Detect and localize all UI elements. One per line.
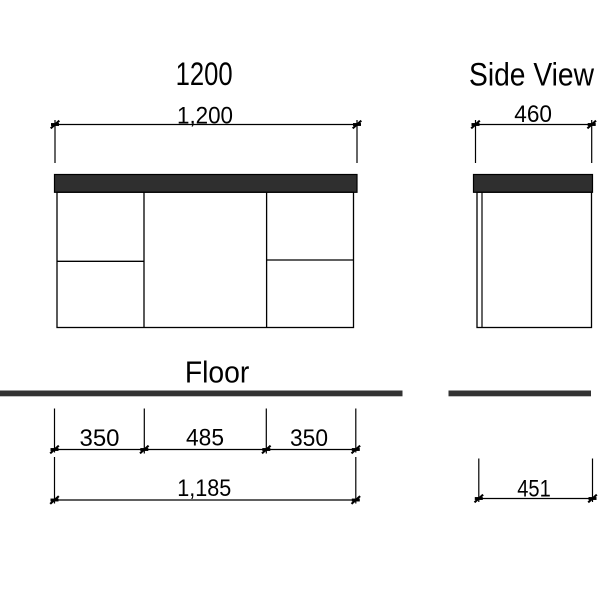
svg-text:1,185: 1,185 bbox=[177, 475, 231, 502]
svg-text:350: 350 bbox=[80, 425, 120, 452]
svg-text:485: 485 bbox=[186, 424, 224, 451]
svg-text:Side View: Side View bbox=[469, 57, 595, 93]
svg-text:350: 350 bbox=[290, 425, 328, 452]
svg-text:1,200: 1,200 bbox=[177, 103, 233, 130]
svg-text:Floor: Floor bbox=[185, 355, 250, 390]
svg-text:1200: 1200 bbox=[176, 56, 233, 92]
